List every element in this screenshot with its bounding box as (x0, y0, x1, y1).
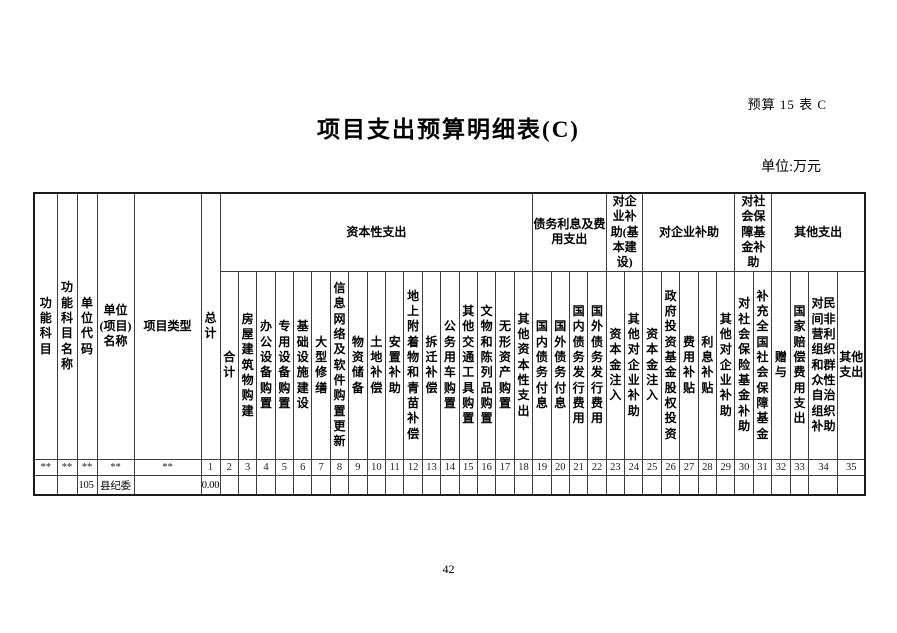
header-functional-subject: 功能科目 (34, 193, 57, 459)
column-number-cell: 3 (238, 459, 256, 475)
data-cell (753, 475, 771, 495)
data-cell (34, 475, 57, 495)
column-number-cell: ** (77, 459, 97, 475)
column-number-cell: 14 (441, 459, 459, 475)
group-header-row: 功能科目 功能科目名称 单位代码 单位 (项目) 名称 项目类型 总计 资本性支… (34, 193, 865, 271)
column-header-cell: 其他资本性支出 (514, 271, 532, 459)
column-number-cell: 19 (533, 459, 551, 475)
data-cell (809, 475, 838, 495)
column-header-cell: 对社会保险基金补助 (735, 271, 753, 459)
data-cell (772, 475, 790, 495)
column-number-cell: ** (34, 459, 57, 475)
data-cell (477, 475, 495, 495)
data-cell: 105 (77, 475, 97, 495)
column-number-cell: 12 (404, 459, 422, 475)
column-number-cell: 23 (606, 459, 624, 475)
column-header-cell: 地上附着物和青苗补偿 (404, 271, 422, 459)
data-cell (330, 475, 348, 495)
column-number-cell: 29 (717, 459, 735, 475)
column-number-cell: 7 (312, 459, 330, 475)
column-header-cell: 资本金注入 (643, 271, 661, 459)
group-header-cell: 资本性支出 (220, 193, 533, 271)
column-number-cell: 9 (349, 459, 367, 475)
data-cell (220, 475, 238, 495)
column-number-cell: 32 (772, 459, 790, 475)
column-header-cell: 其他对企业补助 (717, 271, 735, 459)
column-header-cell: 对民间非营利组织和群众性自治组织补助 (809, 271, 838, 459)
header-grand-total: 总计 (201, 193, 220, 459)
group-header-cell: 对企业补助 (643, 193, 735, 271)
column-number-row: ** ** ** ** ** 1 2 3 (34, 459, 865, 475)
column-number-cell: 16 (477, 459, 495, 475)
column-number-cell: 15 (459, 459, 477, 475)
data-cell (569, 475, 587, 495)
data-cell (533, 475, 551, 495)
data-cell (238, 475, 256, 495)
column-header-cell: 基础设施建设 (294, 271, 312, 459)
column-number-cell: 22 (588, 459, 606, 475)
column-header-cell: 办公设备购置 (257, 271, 275, 459)
column-number-cell: 17 (496, 459, 514, 475)
data-cell (680, 475, 698, 495)
column-number-cell: 5 (275, 459, 293, 475)
column-header-cell: 房屋建筑物购建 (238, 271, 256, 459)
data-cell (349, 475, 367, 495)
column-header-cell: 安置补助 (386, 271, 404, 459)
group-header-cell: 对企业补助(基本建设) (606, 193, 643, 271)
column-number-cell: 30 (735, 459, 753, 475)
data-cell (257, 475, 275, 495)
column-number-cell: 33 (790, 459, 809, 475)
column-header-cell: 国外债务付息 (551, 271, 569, 459)
column-number-cell: 25 (643, 459, 661, 475)
column-header-cell: 国家赔偿费用支出 (790, 271, 809, 459)
data-cell (312, 475, 330, 495)
column-number-cell: 10 (367, 459, 385, 475)
column-number-cell: 18 (514, 459, 532, 475)
budget-detail-table: 功能科目 功能科目名称 单位代码 单位 (项目) 名称 项目类型 总计 资本性支… (33, 192, 866, 496)
page-title: 项目支出预算明细表(C) (0, 110, 897, 144)
data-cell (717, 475, 735, 495)
data-cell (134, 475, 201, 495)
column-header-cell: 合计 (220, 271, 238, 459)
header-unit-project-name: 单位 (项目) 名称 (97, 193, 134, 459)
data-cell (698, 475, 716, 495)
data-cell (661, 475, 679, 495)
data-cell (496, 475, 514, 495)
data-cell (643, 475, 661, 495)
data-cell (735, 475, 753, 495)
data-cell (422, 475, 440, 495)
column-number-cell: 34 (809, 459, 838, 475)
data-cell (625, 475, 643, 495)
data-cell (294, 475, 312, 495)
data-cell (790, 475, 809, 495)
column-number-cell: 11 (386, 459, 404, 475)
budget-table-wrapper: 功能科目 功能科目名称 单位代码 单位 (项目) 名称 项目类型 总计 资本性支… (33, 192, 866, 496)
column-header-cell: 费用补贴 (680, 271, 698, 459)
column-header-cell: 其他交通工具购置 (459, 271, 477, 459)
column-header-cell: 大型修缮 (312, 271, 330, 459)
column-header-cell: 国内债务付息 (533, 271, 551, 459)
group-header-cell: 对社会保障基金补助 (735, 193, 772, 271)
group-header-cell: 其他支出 (772, 193, 865, 271)
data-cell (275, 475, 293, 495)
column-number-cell: 26 (661, 459, 679, 475)
group-header-cell: 债务利息及费用支出 (533, 193, 607, 271)
data-cell (459, 475, 477, 495)
data-cell (367, 475, 385, 495)
data-cell (588, 475, 606, 495)
column-header-cell: 土地补偿 (367, 271, 385, 459)
column-header-cell: 物资储备 (349, 271, 367, 459)
data-cell (514, 475, 532, 495)
column-header-cell: 赠与 (772, 271, 790, 459)
data-cell (838, 475, 865, 495)
column-number-cell: 4 (257, 459, 275, 475)
column-number-cell: 31 (753, 459, 771, 475)
column-header-cell: 资本金注入 (606, 271, 624, 459)
column-number-cell: 8 (330, 459, 348, 475)
column-number-cell: 20 (551, 459, 569, 475)
header-unit-code: 单位代码 (77, 193, 97, 459)
data-cell (441, 475, 459, 495)
data-cell (386, 475, 404, 495)
data-cell: 县纪委 (97, 475, 134, 495)
column-number-cell: 1 (201, 459, 220, 475)
data-cell: 0.00 (201, 475, 220, 495)
column-number-cell: 27 (680, 459, 698, 475)
column-header-cell: 公务用车购置 (441, 271, 459, 459)
column-header-cell: 专用设备购置 (275, 271, 293, 459)
column-header-cell: 拆迁补偿 (422, 271, 440, 459)
data-cell (57, 475, 77, 495)
data-cell (551, 475, 569, 495)
column-header-cell: 无形资产购置 (496, 271, 514, 459)
column-header-cell: 国外债务发行费用 (588, 271, 606, 459)
data-cell (404, 475, 422, 495)
column-number-cell: ** (134, 459, 201, 475)
unit-label: 单位:万元 (761, 156, 821, 176)
data-cell (606, 475, 624, 495)
column-header-cell: 信息网络及软件购置更新 (330, 271, 348, 459)
document-page: 预算 15 表 C 项目支出预算明细表(C) 单位:万元 功能科目 功能科目名称… (0, 0, 897, 633)
column-number-cell: 13 (422, 459, 440, 475)
header-project-type: 项目类型 (134, 193, 201, 459)
column-number-cell: ** (57, 459, 77, 475)
column-header-cell: 补充全国社会保障基金 (753, 271, 771, 459)
column-number-cell: 24 (625, 459, 643, 475)
column-number-cell: 35 (838, 459, 865, 475)
page-number: 42 (0, 562, 897, 577)
column-header-cell: 国内债务发行费用 (569, 271, 587, 459)
column-header-cell: 政府投资基金股权投资 (661, 271, 679, 459)
column-header-cell: 文物和陈列品购置 (477, 271, 495, 459)
column-number-cell: 28 (698, 459, 716, 475)
column-number-cell: 2 (220, 459, 238, 475)
column-number-cell: 21 (569, 459, 587, 475)
column-header-cell: 利息补贴 (698, 271, 716, 459)
column-header-cell: 其他对企业补助 (625, 271, 643, 459)
column-header-cell: 其他支出 (838, 271, 865, 459)
column-number-cell: 6 (294, 459, 312, 475)
column-number-cell: ** (97, 459, 134, 475)
data-row: 105 县纪委 0.00 (34, 475, 865, 495)
header-functional-subject-name: 功能科目名称 (57, 193, 77, 459)
